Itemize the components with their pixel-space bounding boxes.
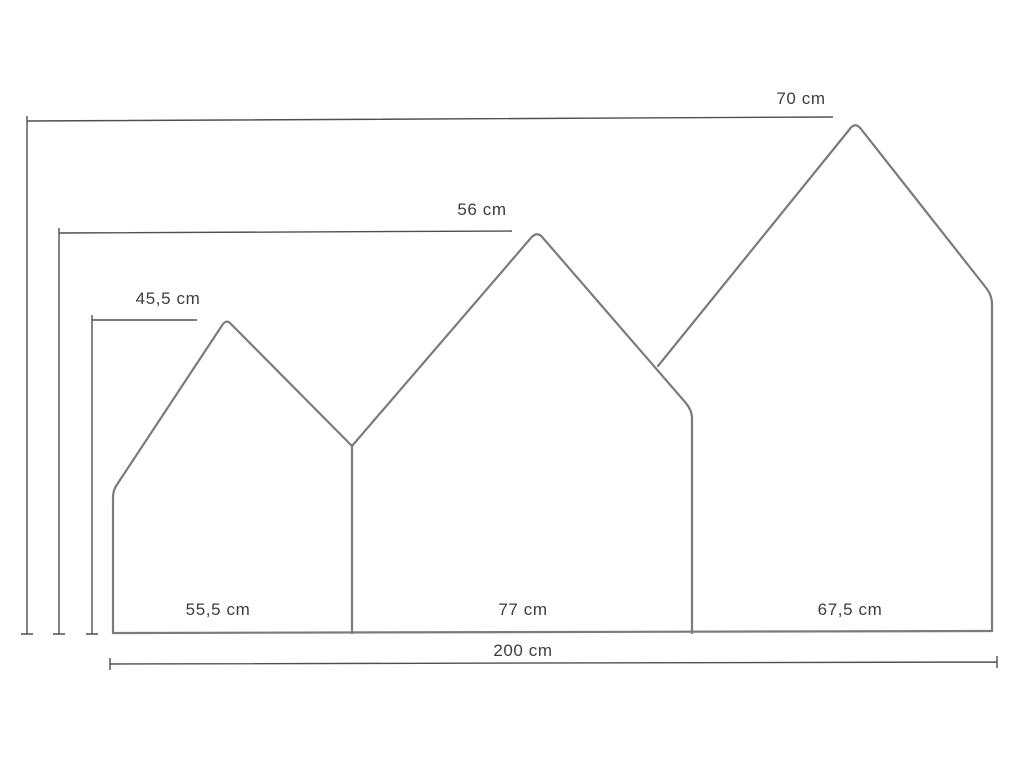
baseline bbox=[113, 631, 992, 633]
dimension-lines bbox=[21, 116, 997, 670]
diagram-svg: 70 cm 56 cm 45,5 cm 55,5 cm 77 cm 67,5 c… bbox=[0, 0, 1024, 768]
left-house-outline bbox=[113, 322, 352, 633]
height-label-middle-house: 56 cm bbox=[457, 200, 506, 219]
dimension-labels: 70 cm 56 cm 45,5 cm 55,5 cm 77 cm 67,5 c… bbox=[136, 89, 883, 660]
height-dim-line-middle-house bbox=[53, 228, 512, 634]
total-width-dim-line bbox=[110, 656, 997, 670]
house-outlines bbox=[113, 125, 992, 633]
width-label-left-house: 55,5 cm bbox=[186, 600, 251, 619]
height-dim-line-right-house bbox=[21, 116, 833, 634]
height-label-right-house: 70 cm bbox=[776, 89, 825, 108]
height-label-left-house: 45,5 cm bbox=[136, 289, 201, 308]
right-house-outline bbox=[658, 125, 992, 631]
middle-house-outline bbox=[352, 234, 692, 633]
height-dim-line-left-house bbox=[86, 315, 197, 634]
width-label-right-house: 67,5 cm bbox=[818, 600, 883, 619]
dimension-diagram: 70 cm 56 cm 45,5 cm 55,5 cm 77 cm 67,5 c… bbox=[0, 0, 1024, 768]
total-width-label: 200 cm bbox=[493, 641, 552, 660]
width-label-middle-house: 77 cm bbox=[498, 600, 547, 619]
